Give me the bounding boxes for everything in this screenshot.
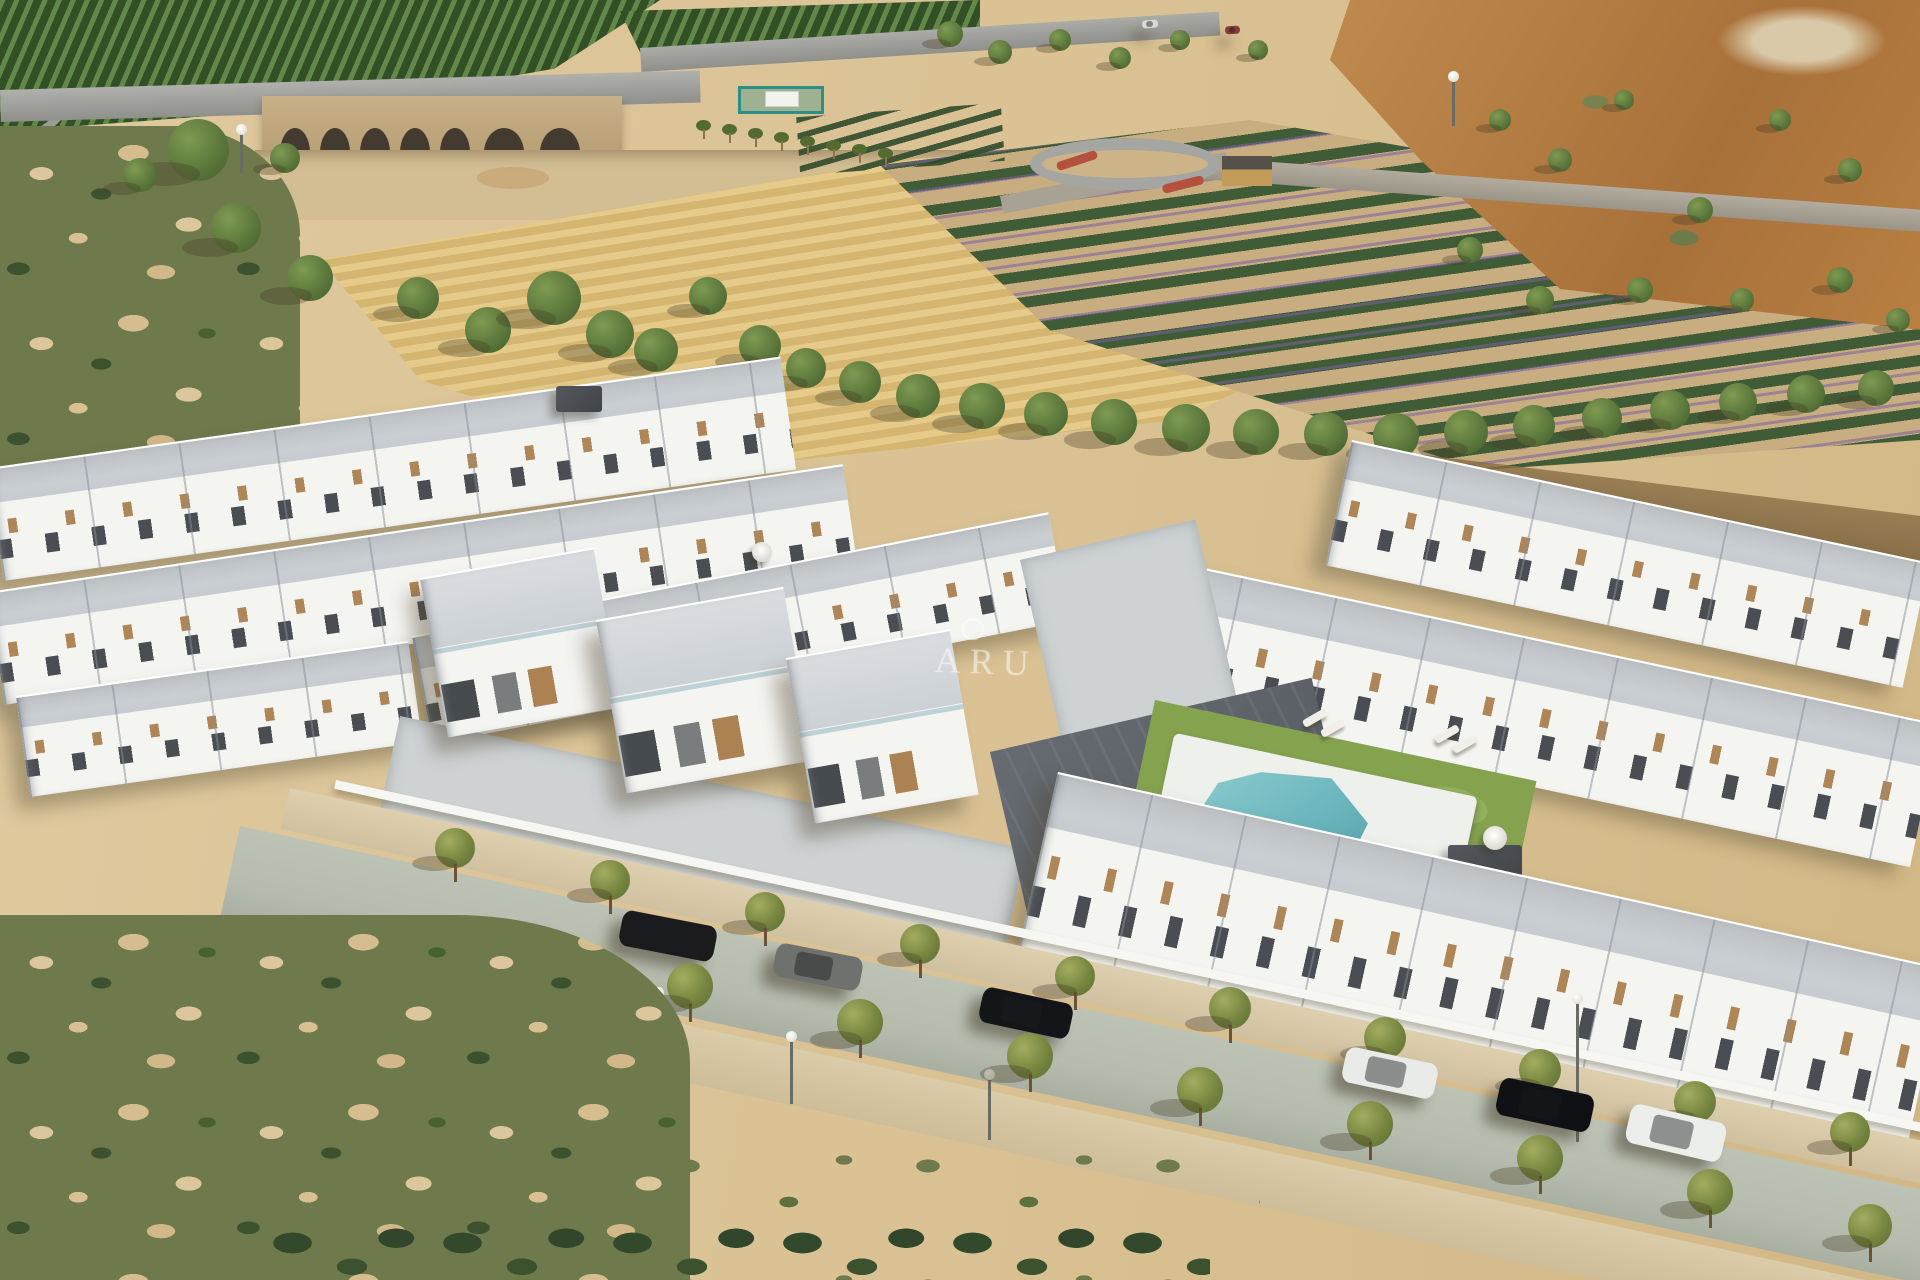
- tree: [1517, 1135, 1563, 1181]
- tree: [1347, 1101, 1393, 1147]
- aerial-scene: ARU: [0, 0, 1920, 1280]
- tree: [1177, 1067, 1223, 1113]
- tree: [667, 963, 713, 1009]
- tree: [1007, 1033, 1053, 1079]
- tree: [1848, 1204, 1892, 1248]
- tree: [837, 999, 883, 1045]
- tree: [1687, 1169, 1733, 1215]
- bush-row-bottom: [250, 1205, 1210, 1280]
